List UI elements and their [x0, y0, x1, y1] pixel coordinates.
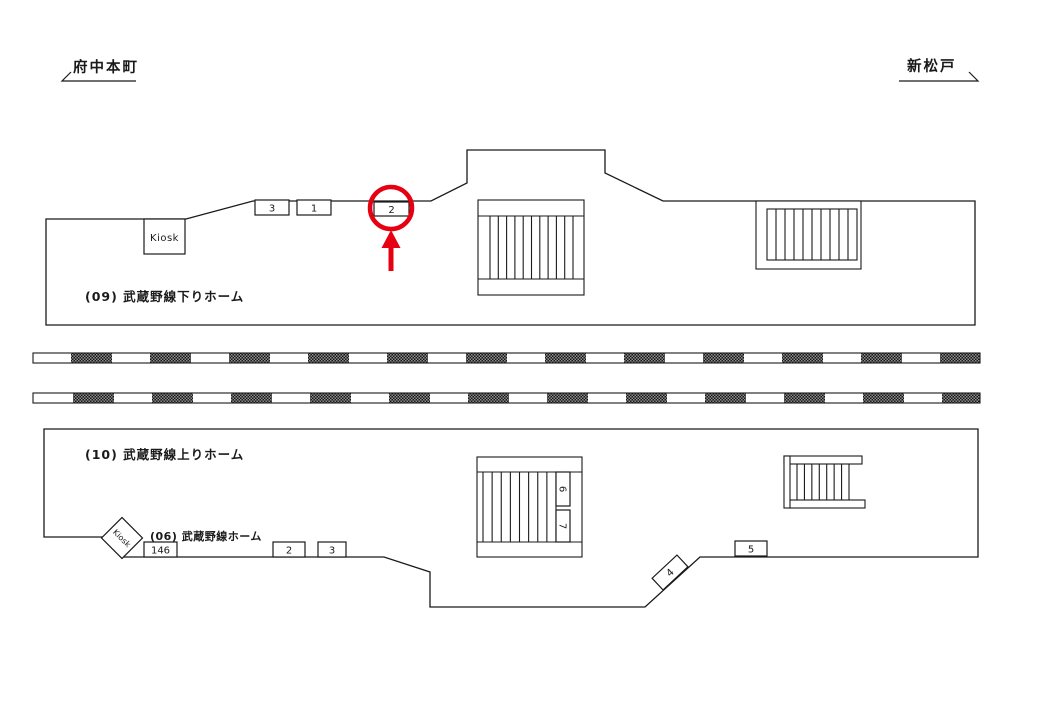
- ad-position-10-146[interactable]: 146: [144, 542, 177, 557]
- platform-09: (09) 武蔵野線下りホーム Kiosk 3 1: [46, 150, 975, 325]
- tracks: [33, 353, 980, 403]
- ad-position-10-5-label: 5: [748, 545, 754, 556]
- track-hatch-segment: [861, 353, 902, 363]
- ad-position-10-2[interactable]: 2: [273, 542, 305, 557]
- kiosk-upper-label: Kiosk: [150, 233, 179, 244]
- track-hatch-segment: [940, 353, 980, 363]
- direction-left-label: 府中本町: [73, 58, 139, 76]
- track-hatch-segment: [387, 353, 428, 363]
- track-lower: [33, 393, 980, 403]
- direction-right-label: 新松戸: [907, 57, 957, 75]
- ad-position-10-6-label: 6: [557, 486, 568, 492]
- stairs-upper-right-icon: [756, 201, 861, 269]
- ad-position-10-7[interactable]: 7: [556, 510, 570, 542]
- highlight-arrow-shaft: [389, 246, 394, 271]
- track-hatch-segment: [466, 353, 507, 363]
- track-hatch-segment: [73, 393, 114, 403]
- track-hatch-segment: [863, 393, 904, 403]
- track-hatch-segment: [150, 353, 191, 363]
- track-hatch-segment: [468, 393, 509, 403]
- track-hatch-segment: [784, 393, 825, 403]
- station-ad-map: 府中本町 新松戸 (09) 武蔵野線下りホーム Kiosk: [0, 0, 1040, 720]
- platform-10-label: (10) 武蔵野線上りホーム: [85, 447, 244, 462]
- track-upper: [33, 353, 980, 363]
- stairs-upper-center-icon: [478, 200, 584, 295]
- track-hatch-segment: [308, 353, 349, 363]
- ad-position-10-3[interactable]: 3: [318, 542, 346, 557]
- kiosk-upper: Kiosk: [144, 219, 185, 254]
- track-hatch-segment: [389, 393, 430, 403]
- ad-position-10-146-label: 146: [151, 546, 170, 557]
- track-hatch-segment: [782, 353, 823, 363]
- track-hatch-segment: [942, 393, 980, 403]
- track-hatch-segment: [152, 393, 193, 403]
- track-hatch-segment: [231, 393, 272, 403]
- ad-position-09-1-label: 1: [311, 204, 317, 215]
- ad-position-09-3[interactable]: 3: [255, 200, 289, 215]
- ad-position-10-3-label: 3: [329, 546, 335, 557]
- direction-left: 府中本町: [62, 58, 139, 81]
- ad-position-09-1[interactable]: 1: [297, 200, 331, 215]
- platform-10: (10) 武蔵野線上りホーム (06) 武蔵野線ホーム Kiosk 146: [44, 429, 978, 607]
- track-hatch-segment: [229, 353, 270, 363]
- ad-position-10-5[interactable]: 5: [735, 541, 767, 556]
- track-hatch-segment: [703, 353, 744, 363]
- track-hatch-segment: [310, 393, 351, 403]
- track-hatch-segment: [626, 393, 667, 403]
- ad-position-09-2[interactable]: 2: [374, 202, 409, 216]
- platform-09-label: (09) 武蔵野線下りホーム: [85, 289, 244, 304]
- ad-position-10-2-label: 2: [286, 546, 292, 557]
- ad-position-09-3-label: 3: [269, 204, 275, 215]
- ad-position-10-7-label: 7: [557, 523, 568, 529]
- direction-right: 新松戸: [899, 57, 978, 81]
- track-hatch-segment: [705, 393, 746, 403]
- ad-position-10-6[interactable]: 6: [556, 472, 570, 506]
- track-hatch-segment: [547, 393, 588, 403]
- station-diagram: 府中本町 新松戸 (09) 武蔵野線下りホーム Kiosk: [0, 0, 1040, 720]
- track-hatch-segment: [71, 353, 112, 363]
- track-hatch-segment: [624, 353, 665, 363]
- track-hatch-segment: [545, 353, 586, 363]
- platform-10-line-label: (06) 武蔵野線ホーム: [150, 529, 262, 543]
- ad-position-09-2-label: 2: [388, 205, 394, 216]
